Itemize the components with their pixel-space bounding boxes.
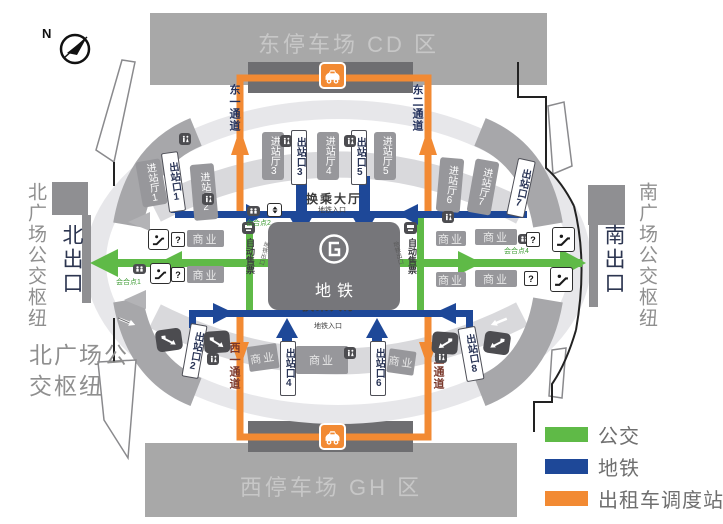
north-hub-caption-line1: 北广场公	[29, 336, 129, 370]
exit-gate-8: 出站口8	[457, 326, 484, 382]
shop-box: 商业	[296, 346, 348, 374]
baggage-ramp-icon	[203, 330, 230, 354]
legend-label-metro: 地铁	[598, 452, 640, 481]
escalator-icon	[550, 267, 573, 292]
legend-swatch-taxi	[545, 491, 588, 506]
restroom-icon	[344, 135, 356, 147]
restroom-icon	[344, 347, 356, 359]
restroom-icon	[179, 133, 191, 145]
taxi-icon	[319, 62, 346, 89]
elevator-icon	[267, 203, 282, 217]
ramp-arrow-icon	[488, 311, 510, 331]
south-square-bus-hub-label: 南广场公交枢纽	[633, 182, 660, 338]
info-icon: ?	[171, 232, 185, 247]
shop-box: 商业	[436, 231, 466, 246]
shop-box: 商业	[187, 230, 224, 247]
escalator-icon	[148, 229, 169, 250]
shop-box: 商业	[436, 272, 466, 287]
west-parking-banner: 西停车场 GH 区	[145, 443, 517, 517]
exit-gate-3: 出站口3	[291, 130, 307, 185]
entry-hall-4: 进站厅4	[317, 132, 339, 180]
entry-hall-6: 进站厅6	[436, 157, 465, 213]
channel-east-2: 东二通道	[409, 84, 425, 146]
south-exit-label: 南出口	[598, 224, 628, 306]
compass-icon	[54, 28, 96, 70]
metro-entrance-top: 地铁入口	[318, 205, 346, 215]
baggage-ramp-icon	[155, 327, 184, 352]
baggage-ramp-icon	[431, 331, 458, 355]
shop-box: 商业	[246, 343, 279, 372]
compass: N	[40, 24, 98, 70]
auto-ticketing-left: 自动售票	[244, 238, 257, 288]
exit-gate-7: 出站口7	[506, 158, 536, 218]
metro-logo-icon	[317, 232, 351, 271]
restroom-icon	[280, 135, 292, 147]
restroom-icon	[207, 353, 219, 365]
north-square-bus-hub-label: 北广场公交枢纽	[22, 182, 49, 338]
legend-item-taxi: 出租车调度站	[545, 484, 723, 513]
shop-box: 商业	[475, 270, 517, 287]
baggage-ramp-icon	[483, 330, 512, 355]
meeting-point-2-label: 会合点2	[246, 218, 271, 228]
info-icon: ?	[171, 267, 185, 282]
ticket-machine-icon	[404, 222, 417, 234]
info-icon: ?	[526, 232, 540, 247]
legend-swatch-bus	[545, 427, 588, 442]
north-exit-label: 北出口	[56, 224, 86, 306]
taxi-icon	[319, 423, 346, 450]
compass-north-label: N	[42, 26, 51, 41]
shop-box: 商业	[187, 266, 224, 283]
exit-gate-6: 出站口6	[370, 341, 386, 396]
info-icon: ?	[524, 271, 538, 286]
legend-label-taxi: 出租车调度站	[598, 484, 723, 513]
legend-item-metro: 地铁	[545, 452, 640, 481]
meeting-point-1-label: 会合点1	[116, 277, 141, 287]
meeting-point-icon	[133, 264, 146, 274]
entry-hall-2: 进站厅2	[190, 163, 219, 221]
legend-swatch-metro	[545, 459, 588, 474]
legend-label-bus: 公交	[598, 420, 640, 449]
shop-box: 商业	[386, 348, 416, 376]
west-parking-label: 西停车场 GH 区	[240, 475, 422, 500]
channel-east-1: 东一通道	[226, 84, 242, 146]
north-hub-caption-line2: 交枢纽	[29, 367, 104, 401]
station-map: 东停车场 CD 区 西停车场 GH 区	[0, 0, 723, 524]
meeting-point-icon	[247, 206, 260, 216]
restroom-icon	[442, 211, 454, 223]
escalator-icon	[150, 263, 171, 284]
restroom-icon	[202, 193, 214, 205]
ramp-arrow-icon	[115, 311, 137, 331]
metro-entrance-bottom: 地铁入口	[314, 321, 342, 331]
metro-station-box: 地铁	[268, 222, 400, 310]
entry-hall-5: 进站厅5	[374, 132, 396, 180]
exit-gate-2: 出站口2	[181, 323, 207, 379]
exit-gate-4: 出站口4	[280, 341, 296, 396]
auto-ticketing-right: 自动售票	[406, 238, 419, 288]
shop-box: 商业	[475, 229, 517, 245]
metro-label: 地铁	[309, 277, 359, 301]
entry-hall-7: 进站厅7	[466, 158, 499, 215]
meeting-point-4-label: 会合点4	[504, 246, 529, 256]
legend-item-bus: 公交	[545, 420, 640, 449]
east-parking-label: 东停车场 CD 区	[258, 32, 439, 57]
escalator-icon	[552, 227, 575, 252]
